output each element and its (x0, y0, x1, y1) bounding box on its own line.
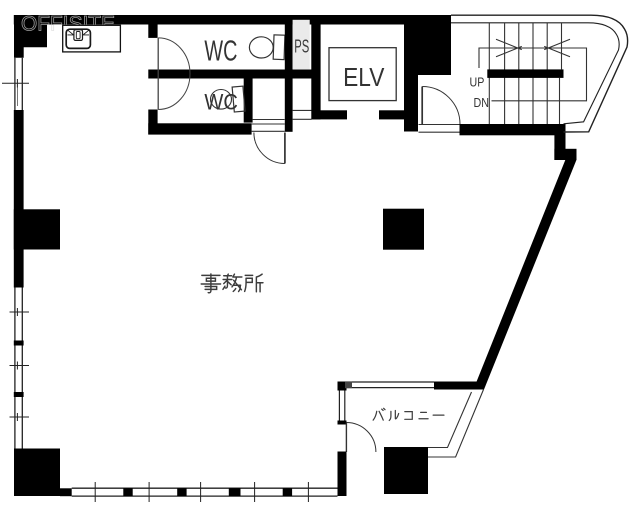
svg-text:ELV: ELV (343, 62, 385, 92)
svg-text:PS: PS (294, 37, 309, 57)
svg-text:UP: UP (470, 75, 485, 90)
svg-text:WC: WC (204, 36, 237, 68)
svg-text:DN: DN (474, 95, 490, 110)
svg-text:WC: WC (204, 89, 238, 114)
